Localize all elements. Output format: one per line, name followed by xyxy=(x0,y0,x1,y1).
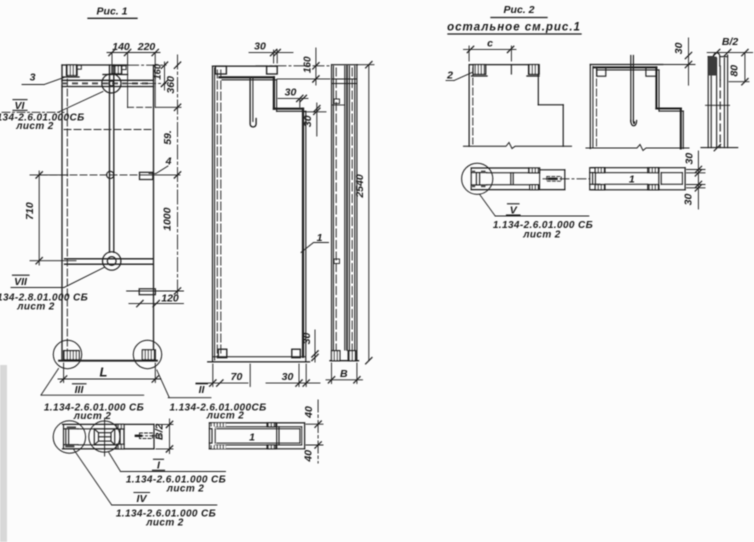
svg-text:30: 30 xyxy=(254,41,266,53)
svg-text:1: 1 xyxy=(317,232,323,244)
svg-text:30: 30 xyxy=(302,115,314,127)
svg-text:Рис. 1: Рис. 1 xyxy=(97,6,128,18)
svg-text:лист 2: лист 2 xyxy=(15,121,54,132)
svg-text:I: I xyxy=(157,459,161,471)
svg-text:30: 30 xyxy=(282,371,294,383)
svg-text:360: 360 xyxy=(165,76,177,94)
svg-text:c: c xyxy=(487,38,493,50)
svg-text:лист 2: лист 2 xyxy=(522,230,561,241)
svg-text:1: 1 xyxy=(249,432,255,444)
svg-text:80: 80 xyxy=(729,65,741,77)
svg-text:В/2: В/2 xyxy=(154,423,166,440)
svg-text:лист 2: лист 2 xyxy=(73,411,112,422)
svg-text:2: 2 xyxy=(446,70,453,82)
svg-text:лист 2: лист 2 xyxy=(166,484,205,495)
svg-text:L: L xyxy=(100,365,108,380)
svg-text:лист 2: лист 2 xyxy=(145,518,184,529)
svg-text:160: 160 xyxy=(153,63,164,80)
svg-text:40: 40 xyxy=(302,450,314,463)
svg-text:30: 30 xyxy=(683,194,695,206)
svg-text:4: 4 xyxy=(165,156,172,168)
svg-text:II: II xyxy=(199,384,206,396)
svg-text:160: 160 xyxy=(303,56,314,73)
svg-text:остальное см.рис.1: остальное см.рис.1 xyxy=(447,22,581,34)
svg-text:30: 30 xyxy=(285,87,297,99)
svg-text:40: 40 xyxy=(303,406,315,419)
svg-text:IV: IV xyxy=(137,493,148,505)
svg-text:лист 2: лист 2 xyxy=(206,411,245,422)
svg-text:1: 1 xyxy=(629,174,635,186)
svg-text:30: 30 xyxy=(673,42,685,54)
svg-text:В/2: В/2 xyxy=(722,36,739,48)
svg-text:лист 2: лист 2 xyxy=(16,302,55,313)
svg-text:30: 30 xyxy=(683,153,695,165)
svg-text:140: 140 xyxy=(112,41,130,53)
svg-text:59.: 59. xyxy=(162,130,174,145)
svg-text:2540: 2540 xyxy=(354,174,366,199)
svg-text:30: 30 xyxy=(301,333,313,345)
svg-text:120: 120 xyxy=(161,293,179,305)
svg-text:710: 710 xyxy=(24,202,36,220)
svg-text:Рис. 2: Рис. 2 xyxy=(504,4,535,16)
svg-text:В: В xyxy=(340,368,348,380)
svg-text:220: 220 xyxy=(137,41,156,53)
svg-text:3: 3 xyxy=(30,72,36,84)
svg-text:70: 70 xyxy=(231,371,243,383)
svg-text:VI: VI xyxy=(15,100,26,112)
svg-text:1000: 1000 xyxy=(162,207,174,231)
svg-text:VII: VII xyxy=(14,276,28,288)
svg-text:III: III xyxy=(75,384,85,396)
